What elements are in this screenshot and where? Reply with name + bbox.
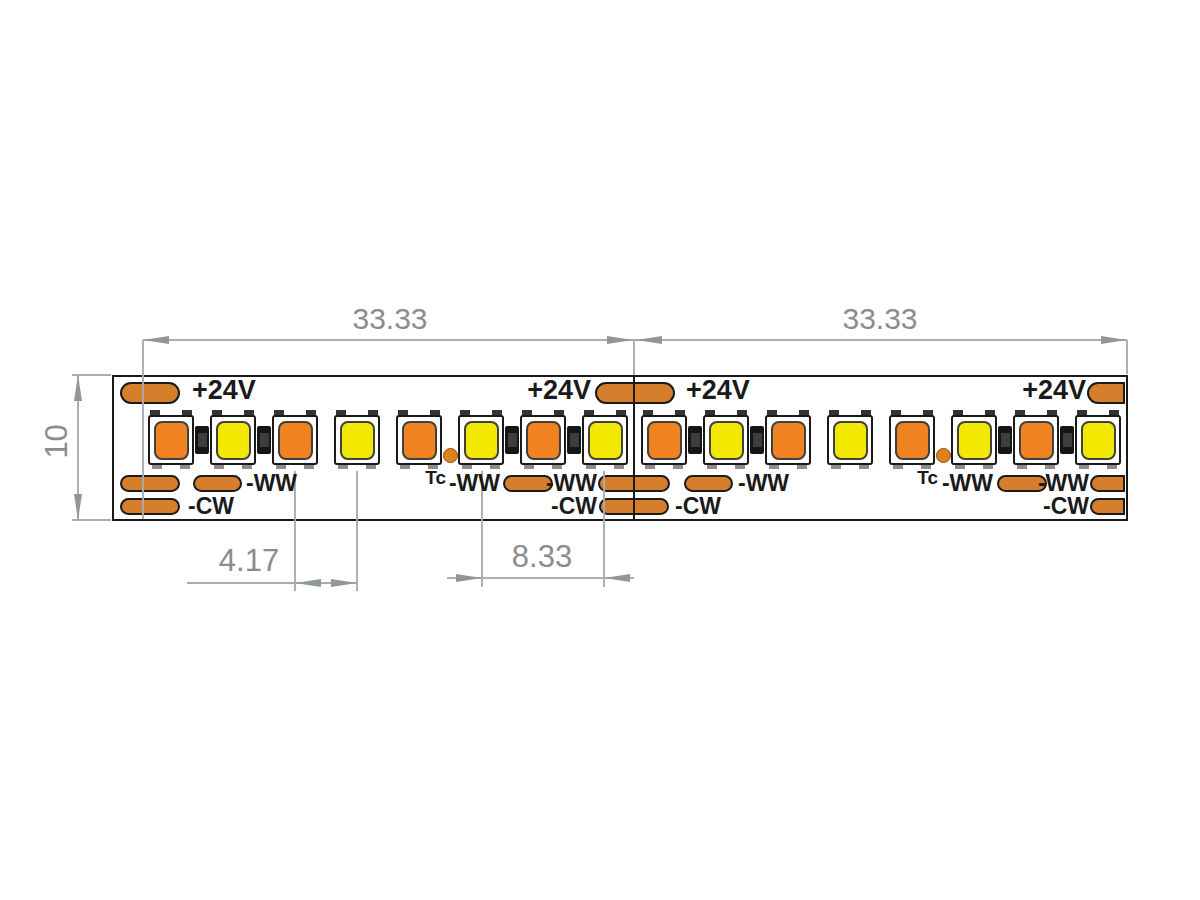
dimension-arrow [636, 336, 662, 344]
dimension-text: 33.33 [842, 304, 917, 334]
led-die-cool-white [833, 421, 868, 460]
warm-white-label: -WW [246, 472, 297, 495]
led-die-cool-white [216, 421, 251, 460]
tc-sensor-dot [443, 448, 458, 463]
resistor-core [1001, 433, 1010, 447]
warm-white-label: -WW [1038, 472, 1089, 495]
led-die-cool-white [1081, 421, 1116, 460]
dimension-extension-line [142, 340, 144, 519]
ww-solder-pad [193, 475, 242, 492]
warm-white-label: -WW [942, 472, 993, 495]
led-die-cool-white [709, 421, 744, 460]
dimension-text: 10 [41, 424, 72, 458]
cool-white-label: -CW [188, 495, 234, 518]
dimension-arrow [604, 574, 630, 582]
resistor-core [260, 433, 269, 447]
plus24v-label: +24V [527, 377, 591, 404]
warm-white-label: -WW [546, 472, 597, 495]
led-die-warm-white [1019, 421, 1054, 460]
strip-cut-line [633, 375, 636, 521]
tc-sensor-dot [936, 448, 951, 463]
plus24v-solder-pad [120, 382, 180, 404]
cw-solder-pad [1090, 498, 1125, 515]
dimension-arrow [1101, 336, 1127, 344]
cool-white-label: -CW [675, 495, 721, 518]
led-die-warm-white [647, 421, 682, 460]
dimension-extension-line [603, 471, 605, 587]
dimension-extension-line [356, 471, 358, 591]
ww-solder-pad [684, 475, 733, 492]
led-die-warm-white [895, 421, 930, 460]
dimension-arrow [295, 579, 321, 587]
dimension-line [143, 339, 1127, 341]
resistor-core [753, 433, 762, 447]
ww-solder-pad [120, 475, 180, 492]
led-die-warm-white [278, 421, 313, 460]
dimension-arrow [74, 494, 82, 520]
resistor-core [508, 433, 517, 447]
resistor-core [1063, 433, 1072, 447]
led-die-cool-white [464, 421, 499, 460]
cool-white-label: -CW [1043, 495, 1089, 518]
tc-label: Tc [917, 468, 938, 487]
dimension-text: 4.17 [219, 545, 279, 576]
resistor-core [570, 433, 579, 447]
led-die-cool-white [588, 421, 623, 460]
resistor-core [198, 433, 207, 447]
ww-solder-pad [1090, 475, 1125, 492]
led-die-warm-white [771, 421, 806, 460]
led-die-warm-white [402, 421, 437, 460]
warm-white-label: -WW [449, 472, 500, 495]
dimension-extension-line [633, 340, 635, 376]
led-die-warm-white [154, 421, 189, 460]
dimension-arrow [607, 336, 633, 344]
led-die-warm-white [526, 421, 561, 460]
led-die-cool-white [340, 421, 375, 460]
led-die-cool-white [957, 421, 992, 460]
dimension-arrow [456, 574, 482, 582]
cw-solder-pad [120, 498, 180, 515]
cool-white-label: -CW [551, 495, 597, 518]
tc-label: Tc [425, 468, 446, 487]
dimension-arrow [143, 336, 169, 344]
dimension-arrow [74, 375, 82, 401]
dimension-extension-line [1126, 340, 1128, 374]
dimension-text: 8.33 [512, 541, 572, 572]
warm-white-label: -WW [738, 472, 789, 495]
plus24v-solder-pad [1087, 382, 1125, 404]
dimension-text: 33.33 [352, 304, 427, 334]
dimension-arrow [331, 579, 357, 587]
plus24v-label: +24V [192, 377, 256, 404]
plus24v-label: +24V [1022, 377, 1086, 404]
resistor-core [691, 433, 700, 447]
led-strip-technical-drawing: 33.3333.334.178.3310+24V+24V+24V+24V-WW-… [0, 0, 1200, 900]
plus24v-label: +24V [686, 377, 750, 404]
